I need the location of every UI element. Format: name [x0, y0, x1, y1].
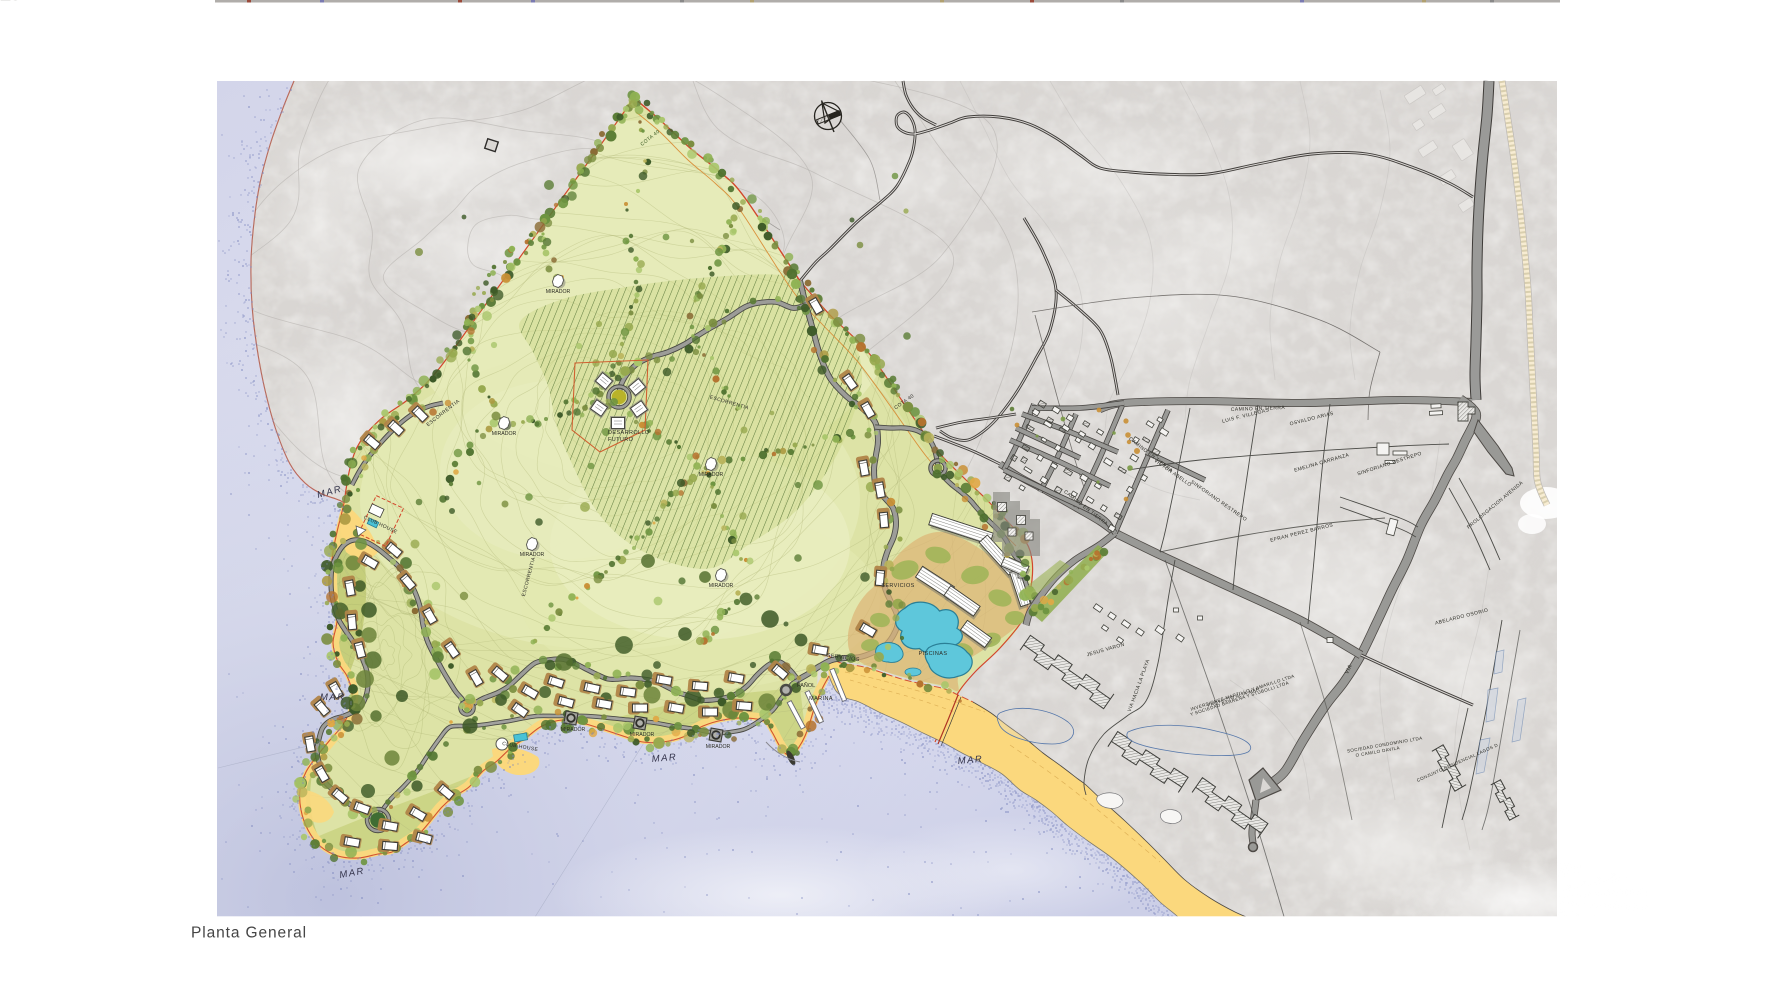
- svg-text:MIRADOR: MIRADOR: [546, 289, 571, 295]
- svg-text:MIRADOR: MIRADOR: [709, 583, 734, 589]
- svg-text:FUTURO: FUTURO: [608, 437, 634, 443]
- svg-text:PISCINAS: PISCINAS: [919, 651, 948, 657]
- svg-text:MIRADOR: MIRADOR: [706, 744, 731, 750]
- svg-text:MIRADOR: MIRADOR: [492, 431, 517, 437]
- svg-text:MIRADOR: MIRADOR: [699, 472, 724, 478]
- svg-text:MAR: MAR: [957, 754, 983, 767]
- svg-text:MARINA: MARINA: [809, 696, 833, 702]
- svg-text:PAÑOL: PAÑOL: [797, 682, 815, 689]
- svg-text:SERVICIOS: SERVICIOS: [881, 583, 914, 589]
- svg-text:DESARROLLO: DESARROLLO: [608, 430, 650, 436]
- svg-text:MAR: MAR: [320, 692, 346, 703]
- svg-text:MAR: MAR: [651, 752, 677, 765]
- svg-text:Planta General: Planta General: [191, 925, 307, 942]
- svg-text:MIRADOR: MIRADOR: [561, 727, 586, 733]
- svg-text:MIRADOR: MIRADOR: [630, 732, 655, 738]
